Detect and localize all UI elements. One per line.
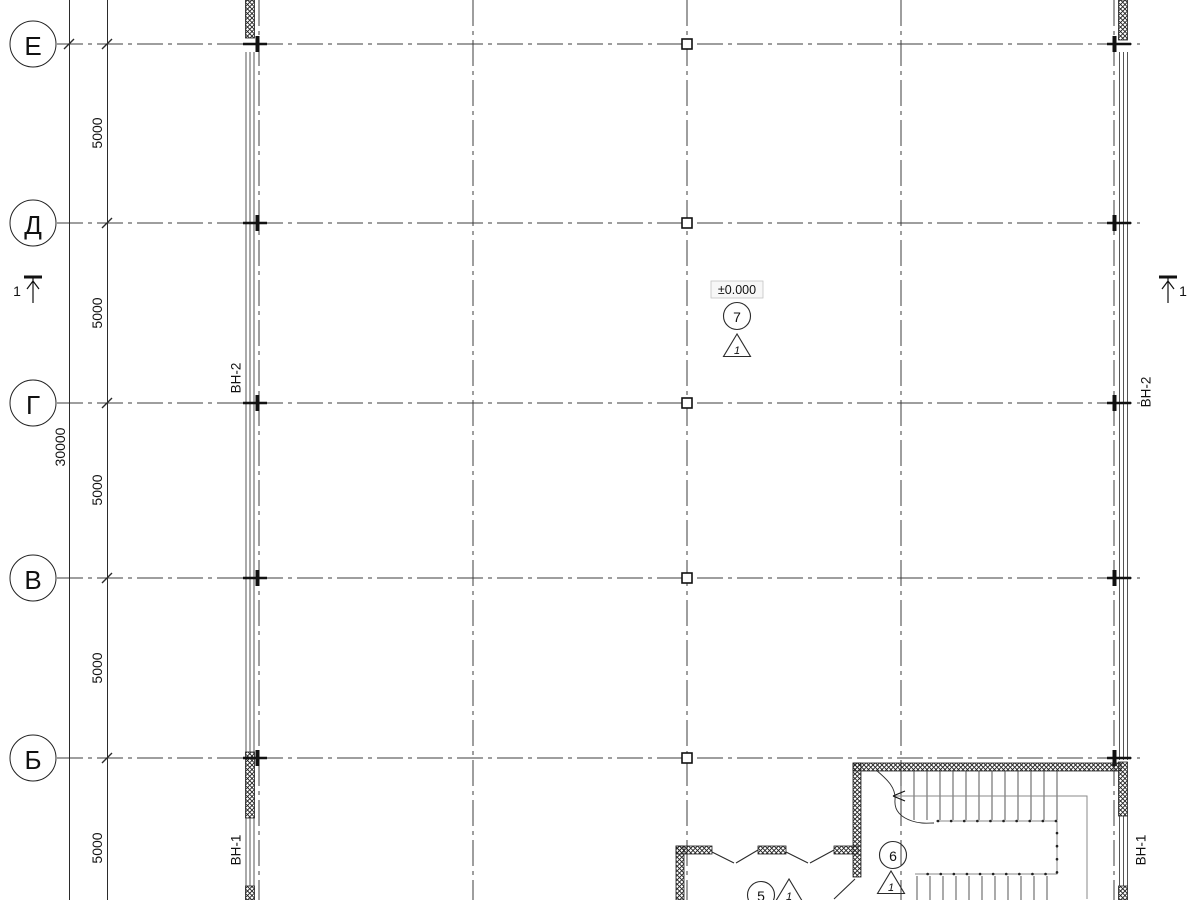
elevation-value: ±0.000 xyxy=(718,283,756,297)
stair-direction-line xyxy=(893,796,1087,899)
section-arrow xyxy=(1162,277,1174,303)
stair-treads-lower xyxy=(917,876,1047,900)
window-label-left-top: ВН-2 xyxy=(229,363,244,394)
stair-railing xyxy=(915,821,1057,874)
floor-plan-svg: 5000 5000 5000 5000 5000 30000 Е Д Г В Б… xyxy=(0,0,1200,900)
dim-5000-2: 5000 xyxy=(89,297,105,328)
exterior-wall-left: ВН-2 ВН-1 xyxy=(229,0,268,900)
floor-type: 1 xyxy=(888,882,894,894)
axis-label-b: Б xyxy=(24,745,41,775)
room-marker-7: 7 1 xyxy=(724,303,751,358)
axis-label-d: Д xyxy=(24,210,42,240)
partition-segment-vertical xyxy=(676,846,684,900)
column-square xyxy=(682,573,692,583)
column-square xyxy=(682,398,692,408)
axis-label-v: В xyxy=(24,565,41,595)
partition-segment xyxy=(834,846,858,854)
column-square xyxy=(682,218,692,228)
axis-label-e: Е xyxy=(24,31,41,61)
partition-segment xyxy=(758,846,786,854)
wall-segment xyxy=(246,886,255,900)
stair-railing-balusters xyxy=(917,821,1057,874)
stairwell xyxy=(834,763,1121,900)
wall-segment xyxy=(246,0,255,38)
room-marker-6: 6 1 xyxy=(878,842,907,895)
window-label-right-top: ВН-2 xyxy=(1139,377,1154,408)
section-number: 1 xyxy=(1179,283,1187,299)
floor-type: 1 xyxy=(786,891,792,900)
interior-partitions xyxy=(676,846,858,900)
window-label-left-bottom: ВН-1 xyxy=(229,835,244,866)
column-marks xyxy=(243,44,267,758)
dim-5000-3: 5000 xyxy=(89,474,105,505)
stair-wall-top xyxy=(853,763,1121,771)
dim-5000-1: 5000 xyxy=(89,117,105,148)
column-square xyxy=(682,39,692,49)
dimension-chain: 5000 5000 5000 5000 5000 30000 xyxy=(52,0,112,900)
floor-type: 1 xyxy=(734,345,740,357)
column-square xyxy=(682,753,692,763)
dim-30000: 30000 xyxy=(52,427,68,466)
wall-segment xyxy=(1119,886,1128,900)
section-arrow xyxy=(27,277,39,303)
room-number: 7 xyxy=(733,309,741,325)
section-number: 1 xyxy=(13,283,21,299)
section-mark-right: 1 xyxy=(1159,277,1187,303)
room-number: 6 xyxy=(889,848,897,864)
curtain-wall-glazing xyxy=(1120,52,1128,886)
stair-door-leaf xyxy=(834,879,855,899)
floor-plan-sheet: 5000 5000 5000 5000 5000 30000 Е Д Г В Б… xyxy=(0,0,1200,900)
stair-wall-left xyxy=(853,763,861,877)
section-mark-left: 1 xyxy=(13,277,42,303)
wall-segment xyxy=(246,752,255,818)
stair-break-line xyxy=(876,770,934,823)
window-label-right-bottom: ВН-1 xyxy=(1134,835,1149,866)
wall-segment xyxy=(1119,0,1128,40)
dim-5000-5: 5000 xyxy=(89,832,105,863)
axis-bubbles: Е Д Г В Б xyxy=(10,21,56,781)
dim-5000-4: 5000 xyxy=(89,652,105,683)
axis-label-g: Г xyxy=(26,390,40,420)
elevation-marker: ±0.000 xyxy=(711,281,763,298)
room-marker-5: 5 1 xyxy=(748,879,803,900)
room-number: 5 xyxy=(757,888,765,900)
